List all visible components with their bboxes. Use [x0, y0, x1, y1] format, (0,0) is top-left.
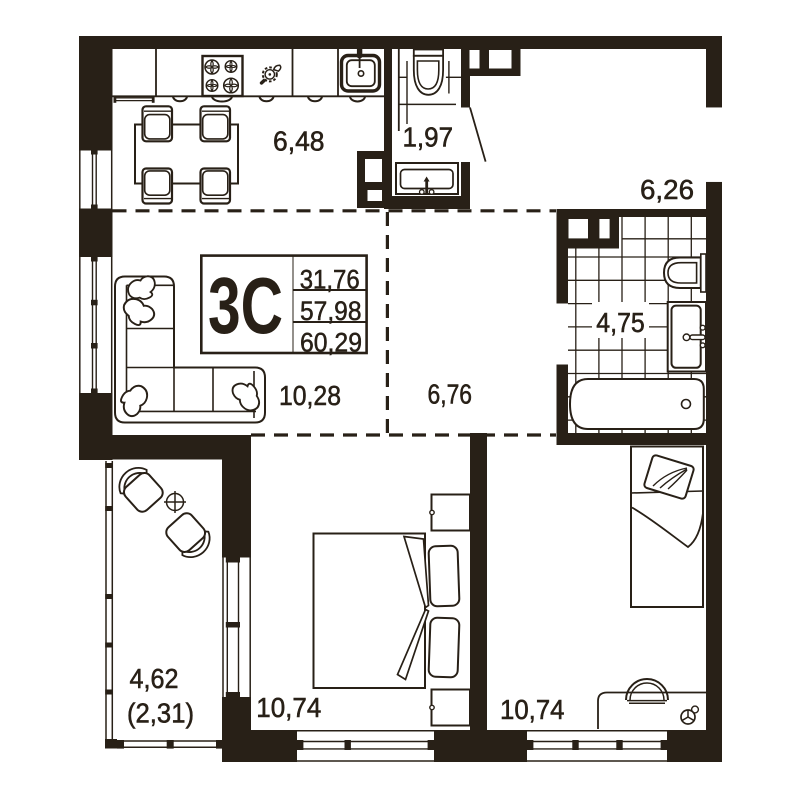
svg-text:57,98: 57,98 — [300, 296, 362, 326]
svg-text:1,97: 1,97 — [403, 122, 454, 153]
svg-text:10,74: 10,74 — [256, 692, 321, 723]
svg-text:10,74: 10,74 — [500, 694, 565, 725]
svg-text:10,28: 10,28 — [279, 380, 341, 411]
svg-text:6,26: 6,26 — [640, 174, 694, 205]
svg-text:4,75: 4,75 — [596, 307, 645, 338]
svg-text:31,76: 31,76 — [300, 264, 360, 294]
svg-text:6,76: 6,76 — [428, 379, 473, 410]
svg-text:6,48: 6,48 — [273, 126, 325, 157]
svg-text:4,62: 4,62 — [130, 663, 179, 694]
svg-text:3C: 3C — [208, 261, 283, 350]
svg-text:60,29: 60,29 — [300, 327, 362, 357]
svg-text:(2,31): (2,31) — [127, 698, 194, 729]
